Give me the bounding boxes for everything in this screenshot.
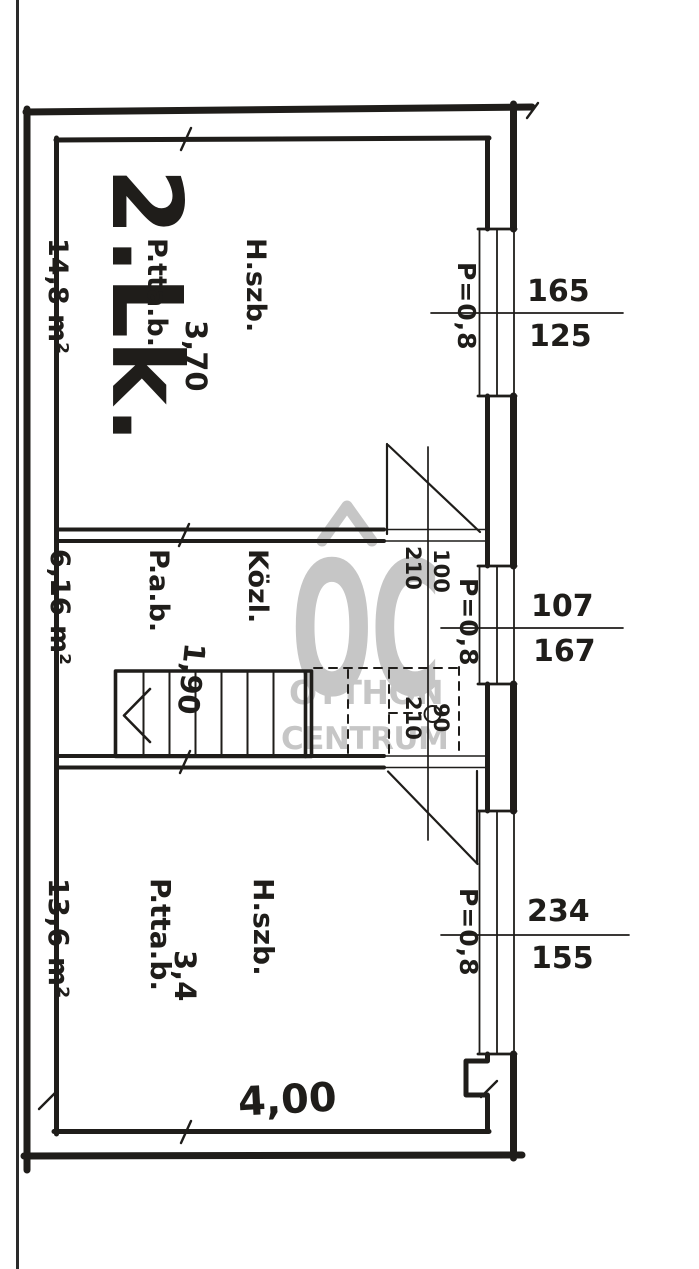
- door-1-threshold: [384, 530, 488, 542]
- outer-wall-top: [26, 107, 532, 112]
- window-3-size-bottom: 155: [531, 941, 594, 978]
- door-1-size-width: 100: [427, 549, 453, 593]
- window-2-parapet-label: P=0,8: [453, 578, 484, 667]
- door-2-size-height: 210: [399, 696, 425, 740]
- room-top-line2: P.tta.b.: [139, 238, 172, 354]
- partition-upper: [56, 530, 384, 542]
- hall-line3: 6,16 m²: [43, 549, 76, 665]
- floorplan-scan: OC OTTHON CENTRUM: [0, 0, 699, 1269]
- hall-line2: P.a.b.: [141, 549, 174, 665]
- stairs-outline: [116, 671, 312, 757]
- window-2-size-bottom: 167: [533, 634, 596, 671]
- room-bottom-width-label: 3,4: [167, 950, 202, 1001]
- room-bottom-line3: 13,6 m²: [41, 878, 75, 998]
- door-1-size-height: 210: [399, 546, 425, 590]
- overall-width-label: 4,00: [237, 1073, 338, 1127]
- door-1-swing: [387, 444, 480, 534]
- room-top-width-label: 3,70: [178, 320, 213, 392]
- window-3-size-top: 234: [527, 894, 590, 931]
- door-2-threshold: [384, 756, 488, 768]
- window-2-glazing: [480, 566, 515, 684]
- room-top-line1: H.szb.: [238, 238, 271, 354]
- room-bottom-line1: H.szb.: [246, 878, 280, 998]
- room-label-hall: Közl. P.a.b. 6,16 m²: [0, 549, 339, 665]
- door-2-swing: [388, 771, 478, 864]
- window-3-parapet-label: P=0,8: [453, 888, 484, 977]
- stairs-direction-arrow: [124, 689, 150, 742]
- tick-left-wall: [39, 1093, 55, 1109]
- window-1-size-top: 165: [527, 274, 590, 311]
- window-1-parapet-label: P=0,8: [451, 262, 482, 351]
- stairs-treads: [144, 672, 274, 757]
- hall-line1: Közl.: [240, 549, 273, 665]
- outer-wall-bottom: [24, 1155, 522, 1156]
- hall-width-label: 1,90: [169, 641, 212, 716]
- door-2-size-width: 90: [427, 703, 453, 732]
- window-2-size-top: 107: [531, 589, 594, 626]
- room-top-line3: 14,8 m²: [41, 238, 74, 354]
- window-3-glazing: [480, 811, 515, 1054]
- inner-wall-top: [56, 138, 489, 140]
- window-1-size-bottom: 125: [529, 319, 592, 356]
- right-wall-windows: [478, 229, 516, 1054]
- room-label-top: H.szb. P.tta.b. 14,8 m²: [0, 238, 337, 354]
